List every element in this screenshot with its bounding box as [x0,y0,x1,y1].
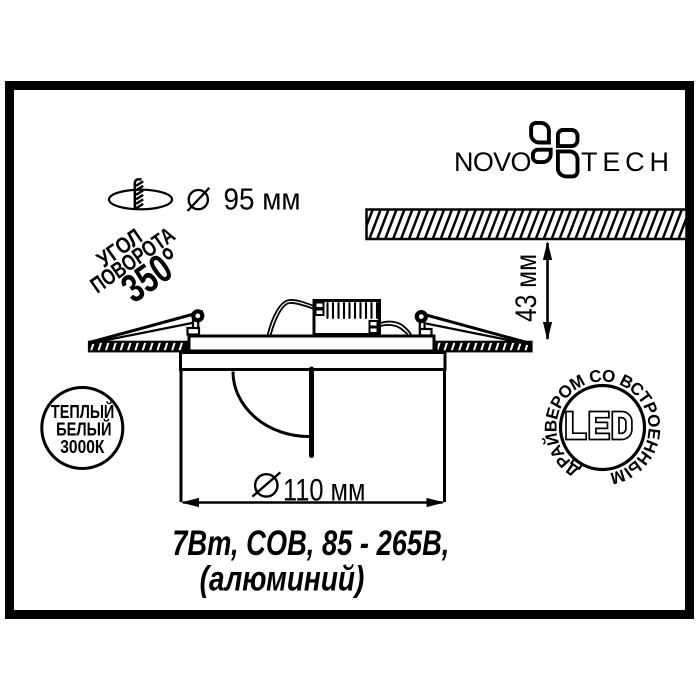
svg-text:NOVO: NOVO [454,147,532,177]
svg-text:43 мм: 43 мм [510,254,543,322]
svg-text:110 мм: 110 мм [283,471,366,507]
svg-text:(алюминий): (алюминий) [200,558,365,598]
svg-text:95 мм: 95 мм [224,182,301,217]
svg-text:3000К: 3000К [60,437,105,458]
svg-text:7Вт, СОВ, 85 - 265В,: 7Вт, СОВ, 85 - 265В, [172,524,449,563]
svg-text:TECH: TECH [581,147,669,177]
